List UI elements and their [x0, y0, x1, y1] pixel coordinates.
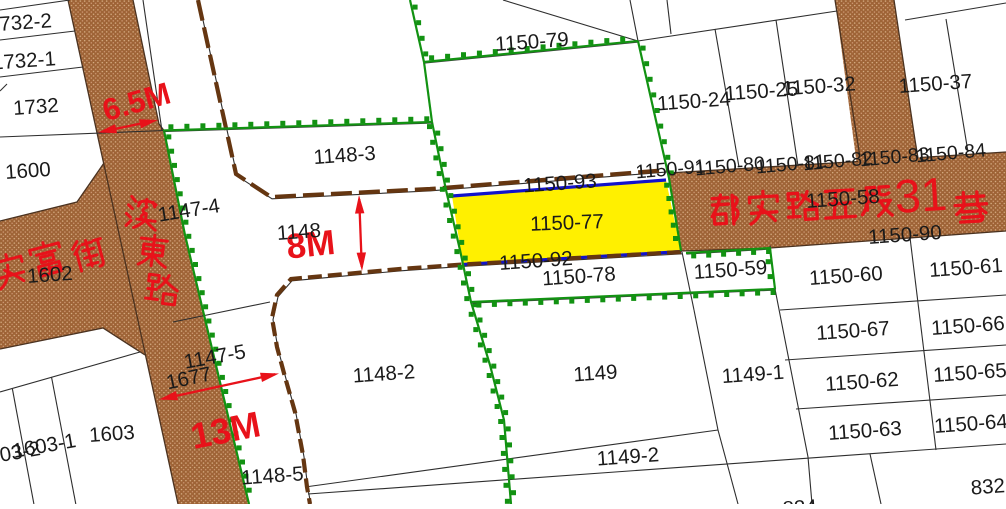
svg-text:1150-64: 1150-64: [933, 410, 1006, 438]
svg-text:1149: 1149: [573, 360, 619, 386]
svg-text:832: 832: [970, 474, 1006, 499]
svg-text:834: 834: [782, 495, 818, 504]
svg-text:1150-77: 1150-77: [530, 210, 604, 236]
svg-text:1148-5: 1148-5: [241, 462, 305, 489]
svg-text:1149-1: 1149-1: [721, 361, 785, 388]
svg-text:1602: 1602: [26, 262, 73, 288]
svg-text:1732-2: 1732-2: [0, 9, 53, 36]
svg-text:1148: 1148: [276, 219, 322, 245]
svg-text:1148-3: 1148-3: [313, 142, 377, 169]
svg-text:1149-2: 1149-2: [596, 443, 660, 470]
svg-text:31: 31: [893, 167, 948, 223]
svg-text:1732-1: 1732-1: [0, 47, 57, 74]
svg-text:1148-2: 1148-2: [352, 360, 416, 387]
svg-text:1732: 1732: [12, 94, 59, 120]
svg-text:1600: 1600: [4, 158, 51, 184]
svg-text:1603: 1603: [88, 421, 135, 447]
